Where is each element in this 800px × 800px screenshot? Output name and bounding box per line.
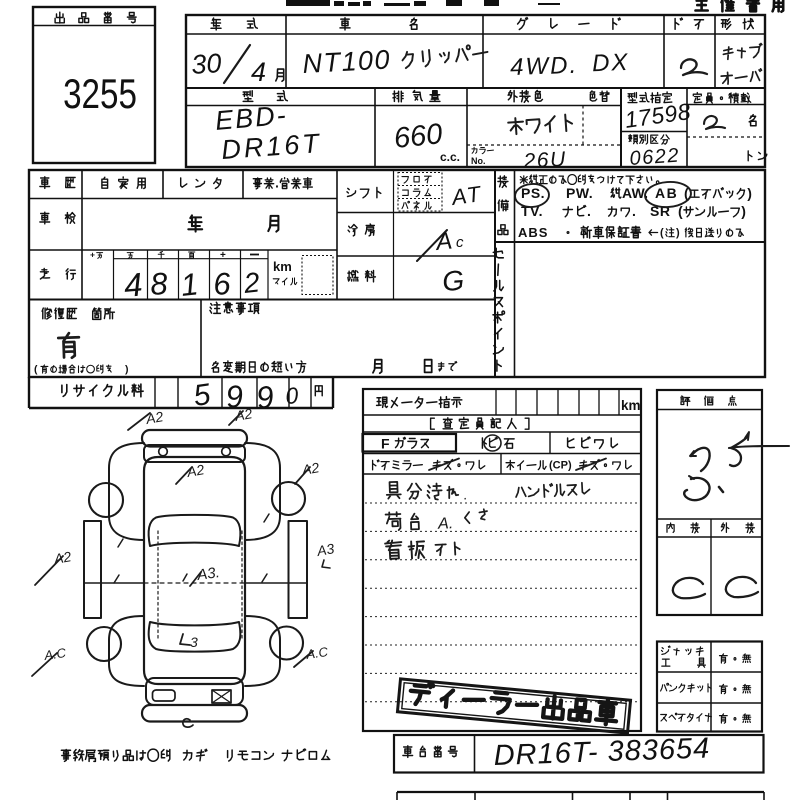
svg-text:3255: 3255 bbox=[63, 70, 137, 116]
svg-text:km: km bbox=[273, 259, 292, 274]
svg-text:0622: 0622 bbox=[629, 145, 681, 170]
svg-text:PS.: PS. bbox=[521, 185, 545, 201]
svg-text:6: 6 bbox=[212, 266, 232, 302]
svg-text:4WD.: 4WD. bbox=[510, 52, 579, 81]
svg-text:A2: A2 bbox=[233, 405, 254, 424]
svg-text:A.C: A.C bbox=[304, 644, 329, 662]
svg-text:A2: A2 bbox=[300, 459, 321, 478]
svg-text:.: . bbox=[587, 203, 591, 219]
svg-text:c: c bbox=[456, 234, 464, 251]
svg-text:c.c.: c.c. bbox=[440, 150, 460, 164]
svg-text:(: ( bbox=[660, 227, 664, 239]
svg-text:NT100: NT100 bbox=[302, 44, 392, 79]
svg-text:3: 3 bbox=[190, 634, 198, 650]
svg-text:A3: A3 bbox=[315, 540, 336, 559]
svg-text:4: 4 bbox=[251, 57, 266, 87]
svg-text:A.C: A.C bbox=[42, 645, 67, 663]
svg-text:): ) bbox=[676, 227, 680, 239]
svg-text:F: F bbox=[381, 436, 390, 452]
svg-text:.: . bbox=[463, 486, 467, 502]
svg-text:.: . bbox=[275, 176, 279, 191]
svg-text:AW.: AW. bbox=[622, 185, 648, 201]
svg-text:A2: A2 bbox=[185, 461, 206, 480]
svg-text:30: 30 bbox=[190, 48, 222, 80]
svg-text:(CP): (CP) bbox=[549, 460, 572, 472]
svg-text:G: G bbox=[441, 265, 465, 297]
svg-text:AT: AT bbox=[448, 181, 484, 210]
svg-text:): ) bbox=[747, 185, 752, 201]
svg-text:+: + bbox=[220, 250, 226, 261]
svg-text:0: 0 bbox=[285, 382, 300, 409]
svg-text:No.: No. bbox=[471, 156, 486, 166]
svg-text:.: . bbox=[632, 203, 636, 219]
svg-text:DX: DX bbox=[592, 49, 630, 77]
svg-text:AB: AB bbox=[655, 185, 678, 201]
svg-text:(: ( bbox=[34, 364, 38, 376]
svg-text:A3.: A3. bbox=[195, 564, 221, 584]
svg-text:8: 8 bbox=[149, 266, 169, 302]
svg-text:): ) bbox=[741, 203, 746, 219]
svg-text:): ) bbox=[125, 364, 129, 376]
svg-text:+: + bbox=[90, 250, 95, 260]
svg-text:A2: A2 bbox=[52, 548, 73, 567]
svg-text:km: km bbox=[621, 398, 641, 413]
svg-text:A2: A2 bbox=[144, 408, 165, 427]
svg-text:1: 1 bbox=[179, 266, 200, 303]
svg-text:ABS: ABS bbox=[518, 225, 548, 240]
svg-text:660: 660 bbox=[392, 118, 443, 155]
svg-text:PW.: PW. bbox=[566, 185, 593, 201]
svg-text:4: 4 bbox=[122, 266, 144, 304]
svg-text:A.: A. bbox=[437, 515, 454, 533]
